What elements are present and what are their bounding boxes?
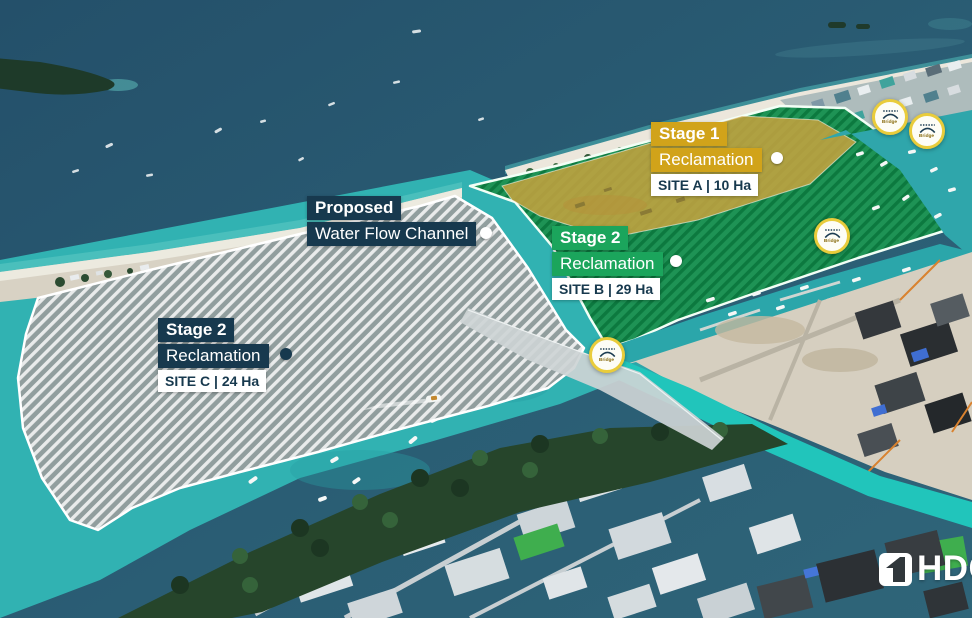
bridge-marker-3: Bridge xyxy=(814,218,850,254)
site-b-pointer-dot xyxy=(670,255,682,267)
site-c-activity: Reclamation xyxy=(158,344,269,368)
bridge-arch-icon xyxy=(918,123,937,133)
label-site-a: Stage 1 Reclamation SITE A | 10 Ha xyxy=(651,122,762,196)
hdc-logo-icon xyxy=(879,553,912,586)
site-b-stage: Stage 2 xyxy=(552,226,628,250)
bridge-arch-icon xyxy=(823,228,842,238)
channel-line1: Proposed xyxy=(307,196,401,220)
site-a-stage: Stage 1 xyxy=(651,122,727,146)
label-site-c: Stage 2 Reclamation SITE C | 24 Ha xyxy=(158,318,269,392)
site-b-activity: Reclamation xyxy=(552,252,663,276)
site-a-pointer-dot xyxy=(771,152,783,164)
site-c-detail: SITE C | 24 Ha xyxy=(158,370,266,392)
channel-line2: Water Flow Channel xyxy=(307,222,476,246)
bridge-arch-icon xyxy=(598,347,617,357)
hdc-logo-text: HDC xyxy=(917,549,972,589)
label-site-b: Stage 2 Reclamation SITE B | 29 Ha xyxy=(552,226,663,300)
site-b-detail: SITE B | 29 Ha xyxy=(552,278,660,300)
site-c-stage: Stage 2 xyxy=(158,318,234,342)
label-water-flow-channel: Proposed Water Flow Channel xyxy=(307,196,476,246)
bridge-marker-1: Bridge xyxy=(872,99,908,135)
bridge-marker-4: Bridge xyxy=(589,337,625,373)
site-a-detail: SITE A | 10 Ha xyxy=(651,174,758,196)
aerial-photo-background xyxy=(0,0,972,618)
bridge-marker-2: Bridge xyxy=(909,113,945,149)
site-c-pointer-dot xyxy=(280,348,292,360)
hdc-logo: HDC xyxy=(879,549,972,589)
site-a-activity: Reclamation xyxy=(651,148,762,172)
bridge-marker-label: Bridge xyxy=(824,239,839,244)
bridge-marker-label: Bridge xyxy=(919,134,934,139)
bridge-arch-icon xyxy=(881,109,900,119)
bridge-marker-label: Bridge xyxy=(882,120,897,125)
bridge-marker-label: Bridge xyxy=(599,358,614,363)
channel-pointer-dot xyxy=(480,227,492,239)
